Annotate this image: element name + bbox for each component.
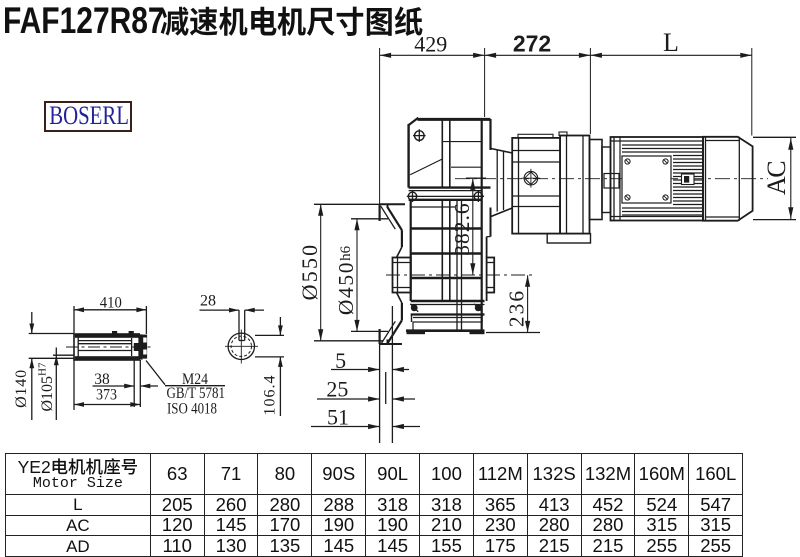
svg-text:AC: AC — [762, 162, 791, 195]
svg-text:106.4: 106.4 — [262, 375, 279, 416]
svg-text:410: 410 — [100, 294, 122, 311]
svg-text:38: 38 — [94, 371, 110, 388]
svg-text:28: 28 — [200, 292, 216, 309]
svg-text:272: 272 — [513, 31, 551, 57]
svg-text:382.6: 382.6 — [450, 202, 474, 255]
svg-text:51: 51 — [327, 405, 349, 430]
svg-text:L: L — [663, 28, 679, 57]
svg-text:25: 25 — [326, 377, 348, 402]
svg-text:429: 429 — [414, 31, 447, 56]
svg-text:Ø140: Ø140 — [13, 369, 30, 408]
svg-text:Ø105H7: Ø105H7 — [37, 362, 57, 412]
svg-text:ISO 4018: ISO 4018 — [167, 400, 217, 417]
svg-text:236: 236 — [505, 289, 529, 327]
svg-text:Ø450h6: Ø450h6 — [334, 245, 358, 315]
svg-text:373: 373 — [96, 387, 117, 404]
svg-text:Ø550: Ø550 — [297, 243, 322, 301]
svg-text:5: 5 — [335, 348, 346, 373]
